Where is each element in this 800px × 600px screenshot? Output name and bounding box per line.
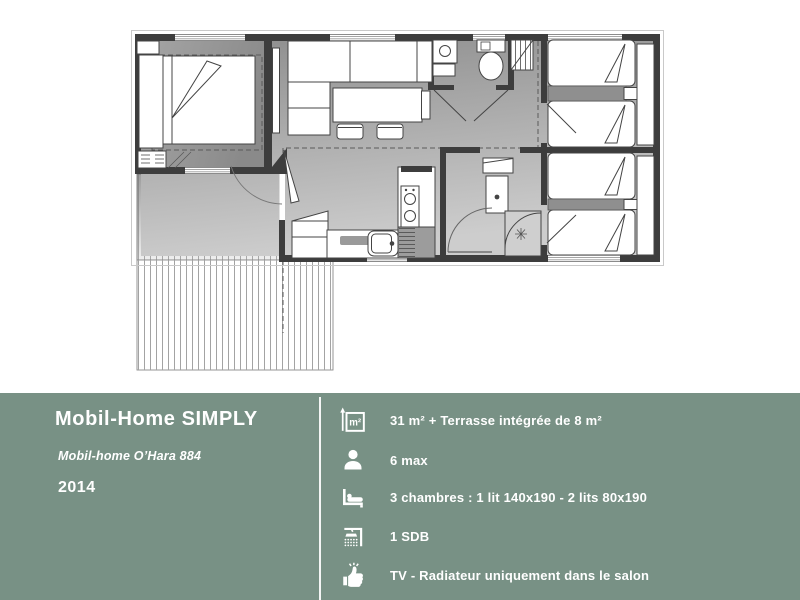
floorplan bbox=[0, 0, 800, 393]
dining-table bbox=[333, 88, 422, 122]
feature-bathroom: 1 SDB bbox=[340, 522, 429, 550]
nightstand bbox=[548, 86, 626, 101]
feature-equipment: TV - Radiateur uniquement dans le salon bbox=[340, 561, 649, 589]
feature-label: 6 max bbox=[390, 453, 428, 468]
person-icon bbox=[340, 447, 366, 473]
bed-icon bbox=[340, 484, 366, 510]
floorplan-area bbox=[0, 0, 800, 393]
deck-terrace bbox=[137, 260, 333, 370]
feature-area: m² 31 m² + Terrasse intégrée de 8 m² bbox=[340, 406, 602, 434]
feature-label: 3 chambres : 1 lit 140x190 - 2 lits 80x1… bbox=[390, 490, 647, 505]
feature-capacity: 6 max bbox=[340, 446, 428, 474]
shelf-desk bbox=[637, 156, 654, 255]
chair bbox=[337, 124, 363, 139]
area-icon: m² bbox=[340, 407, 366, 433]
vertical-divider bbox=[319, 397, 321, 600]
washbasin bbox=[433, 40, 457, 63]
stove bbox=[401, 186, 419, 227]
page-title: Mobil-Home SIMPLY bbox=[55, 408, 258, 431]
sliding-door bbox=[273, 48, 280, 133]
thumb-up-icon bbox=[340, 562, 366, 588]
chair bbox=[377, 124, 403, 139]
shoe-rack bbox=[138, 151, 166, 168]
feature-label: 31 m² + Terrasse intégrée de 8 m² bbox=[390, 413, 602, 428]
info-panel: Mobil-Home SIMPLY Mobil-home O’Hara 884 … bbox=[0, 393, 800, 600]
single-bed bbox=[548, 40, 635, 86]
tall-cabinet bbox=[417, 41, 432, 82]
wardrobe bbox=[139, 55, 163, 148]
sofa-bench bbox=[288, 41, 417, 82]
shelf-desk bbox=[637, 44, 654, 145]
shower-icon bbox=[340, 523, 366, 549]
feature-bedrooms: 3 chambres : 1 lit 140x190 - 2 lits 80x1… bbox=[340, 483, 647, 511]
svg-text:m²: m² bbox=[349, 417, 362, 428]
model-subtitle: Mobil-home O’Hara 884 bbox=[58, 449, 201, 463]
toilet-bowl bbox=[479, 52, 503, 80]
feature-label: TV - Radiateur uniquement dans le salon bbox=[390, 568, 649, 583]
model-year: 2014 bbox=[58, 479, 96, 497]
nightstand bbox=[548, 199, 626, 210]
range-hood bbox=[401, 166, 432, 172]
vanity bbox=[486, 176, 508, 213]
single-bed bbox=[548, 153, 635, 199]
single-bed bbox=[548, 210, 635, 255]
feature-label: 1 SDB bbox=[390, 529, 429, 544]
brochure-card: Mobil-Home SIMPLY Mobil-home O’Hara 884 … bbox=[0, 0, 800, 600]
single-bed bbox=[548, 101, 635, 147]
